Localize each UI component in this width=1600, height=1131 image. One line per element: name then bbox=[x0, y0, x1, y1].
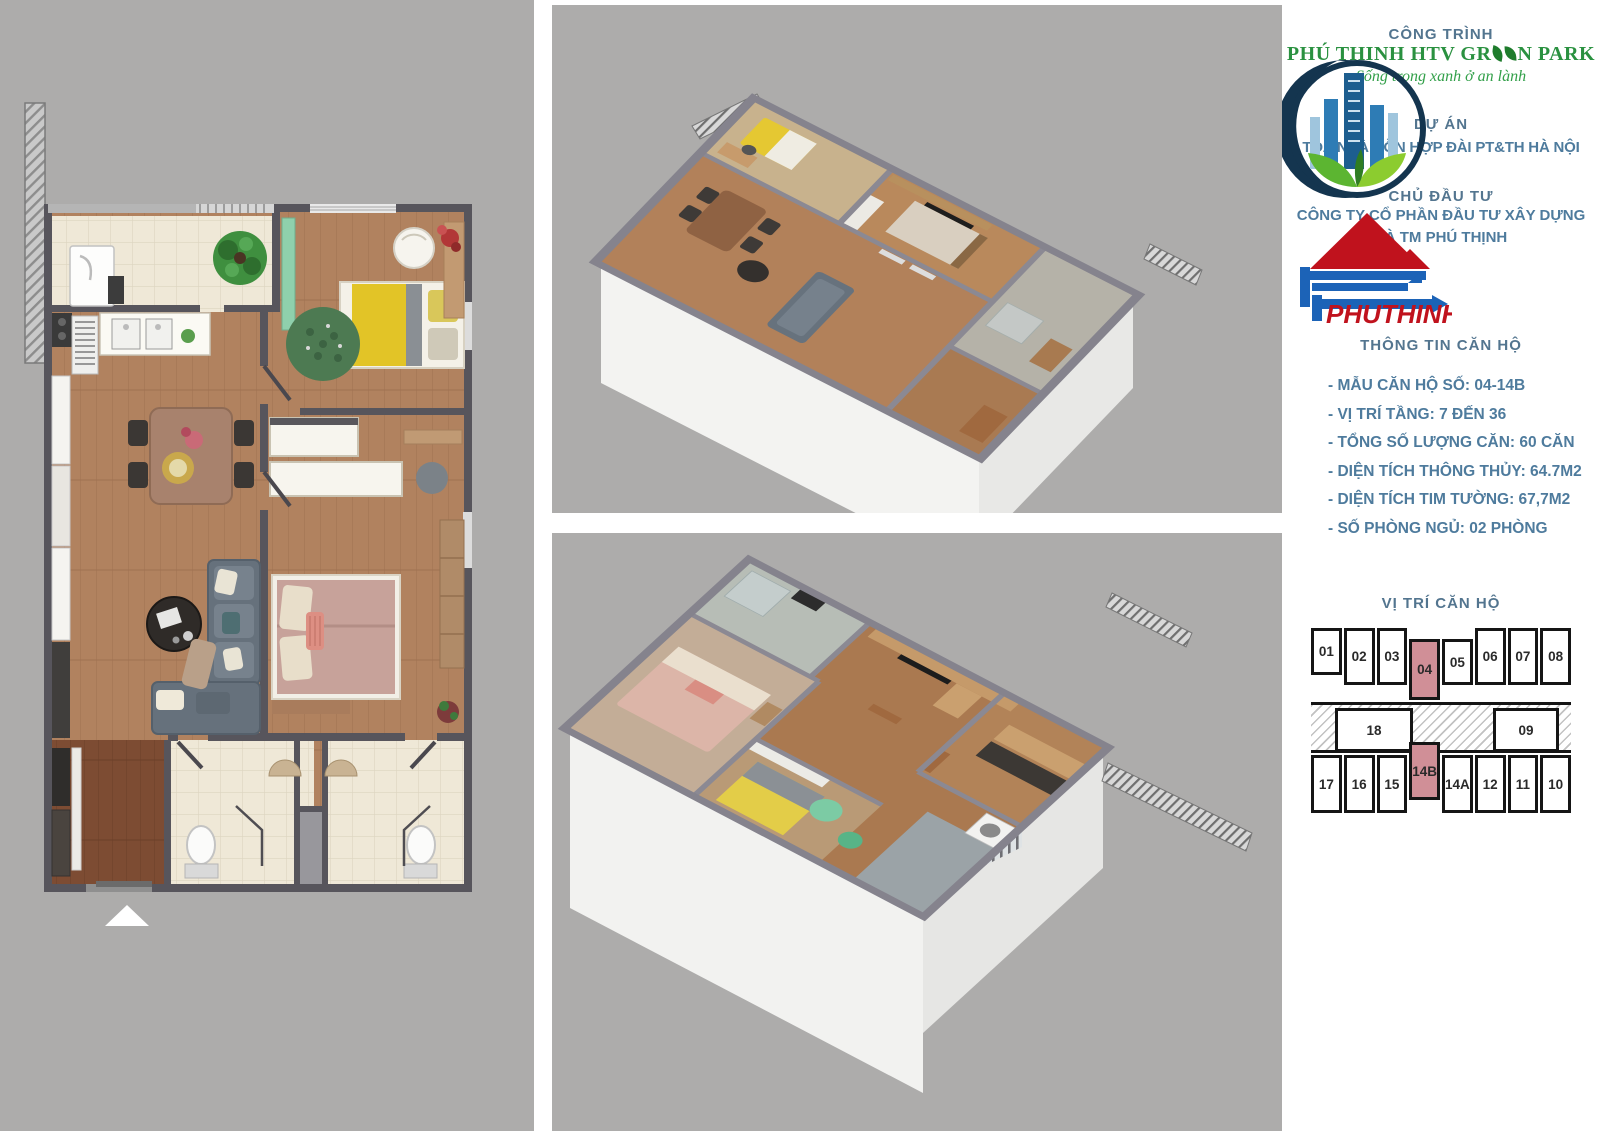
divider-middle bbox=[552, 513, 1282, 533]
hatch-strip-top bbox=[1106, 593, 1192, 647]
counter bbox=[52, 376, 70, 464]
loggia-unit bbox=[108, 276, 124, 304]
washer bbox=[70, 246, 114, 306]
info-item: - DIỆN TÍCH THÔNG THỦY: 64.7M2 bbox=[1328, 458, 1600, 487]
floor-plan-2d bbox=[0, 0, 534, 1131]
phuthinh-logo-icon: PHUTHINH bbox=[1282, 211, 1452, 327]
apartment-info-title: THÔNG TIN CĂN HỘ bbox=[1282, 337, 1600, 354]
green-park-logo-icon bbox=[1282, 55, 1432, 203]
divider-top bbox=[552, 0, 1282, 5]
shaft bbox=[300, 812, 324, 886]
brand-name-post: N PARK bbox=[1517, 43, 1595, 65]
render-3d-top bbox=[552, 6, 1282, 513]
unit-cell-16: 16 bbox=[1344, 755, 1375, 813]
info-item: - SỐ PHÒNG NGỦ: 02 PHÒNG bbox=[1328, 515, 1600, 544]
phuthinh-logo-text: PHUTHINH bbox=[1326, 299, 1452, 327]
mint-cabinet bbox=[282, 218, 295, 330]
unit-map-bottom-row: 17161514B14A121110 bbox=[1311, 755, 1571, 813]
unit-cell-10: 10 bbox=[1540, 755, 1571, 813]
toilet-2 bbox=[407, 826, 435, 864]
unit-map-top-row: 0102030405060708 bbox=[1311, 628, 1571, 700]
entry-cabinets bbox=[52, 748, 81, 876]
construction-label: CÔNG TRÌNH bbox=[1282, 26, 1600, 43]
info-item: - VỊ TRÍ TẦNG: 7 ĐẾN 36 bbox=[1328, 401, 1600, 430]
unit-map-corridor: 1809 bbox=[1311, 702, 1571, 753]
dining-table bbox=[150, 408, 232, 504]
unit-cell-05: 05 bbox=[1442, 639, 1473, 685]
wardrobe-tall bbox=[440, 520, 464, 668]
fridge bbox=[52, 642, 70, 738]
apartment-info-list: - MẪU CĂN HỘ SỐ: 04-14B- VỊ TRÍ TẦNG: 7 … bbox=[1328, 372, 1600, 543]
unit-cell-17: 17 bbox=[1311, 755, 1342, 813]
toilet-1 bbox=[187, 826, 215, 864]
hatch-strip-right bbox=[1144, 244, 1202, 285]
unit-cell-09: 09 bbox=[1493, 708, 1559, 752]
unit-cell-04: 04 bbox=[1409, 639, 1440, 700]
unit-cell-12: 12 bbox=[1475, 755, 1506, 813]
brochure-page: { "page": {"background": "#adacab", "pan… bbox=[0, 0, 1600, 1131]
bed-bench bbox=[272, 700, 350, 714]
unit-cell-03: 03 bbox=[1377, 628, 1408, 685]
render-3d-bottom bbox=[552, 533, 1282, 1131]
unit-cell-07: 07 bbox=[1508, 628, 1539, 685]
unit-cell-01: 01 bbox=[1311, 628, 1342, 675]
shared-wall-hatch bbox=[25, 103, 45, 363]
unit-map: 0102030405060708 1809 17161514B14A121110 bbox=[1311, 628, 1571, 813]
unit-cell-14A: 14A bbox=[1442, 755, 1473, 813]
info-item: - MẪU CĂN HỘ SỐ: 04-14B bbox=[1328, 372, 1600, 401]
leaf-icon bbox=[1491, 45, 1504, 62]
unit-map-title: VỊ TRÍ CĂN HỘ bbox=[1282, 595, 1600, 612]
unit-cell-14B: 14B bbox=[1409, 742, 1440, 800]
unit-cell-02: 02 bbox=[1344, 628, 1375, 685]
unit-cell-18: 18 bbox=[1335, 708, 1413, 752]
info-panel: CÔNG TRÌNH PHÚ THỊNH HTV GRN PARK Sống t… bbox=[1282, 0, 1600, 1131]
info-item: - DIỆN TÍCH TIM TƯỜNG: 67,7M2 bbox=[1328, 486, 1600, 515]
dish-rack bbox=[72, 316, 98, 374]
unit-cell-08: 08 bbox=[1540, 628, 1571, 685]
info-item: - TỔNG SỐ LƯỢNG CĂN: 60 CĂN bbox=[1328, 429, 1600, 458]
unit-cell-11: 11 bbox=[1508, 755, 1539, 813]
unit-cell-15: 15 bbox=[1377, 755, 1408, 813]
desk-chair bbox=[416, 462, 448, 494]
leaf-icon bbox=[1505, 46, 1517, 62]
hatch-strip-right bbox=[1102, 763, 1252, 851]
unit-cell-06: 06 bbox=[1475, 628, 1506, 685]
entrance-arrow bbox=[105, 905, 149, 926]
divider-left bbox=[534, 0, 552, 1131]
